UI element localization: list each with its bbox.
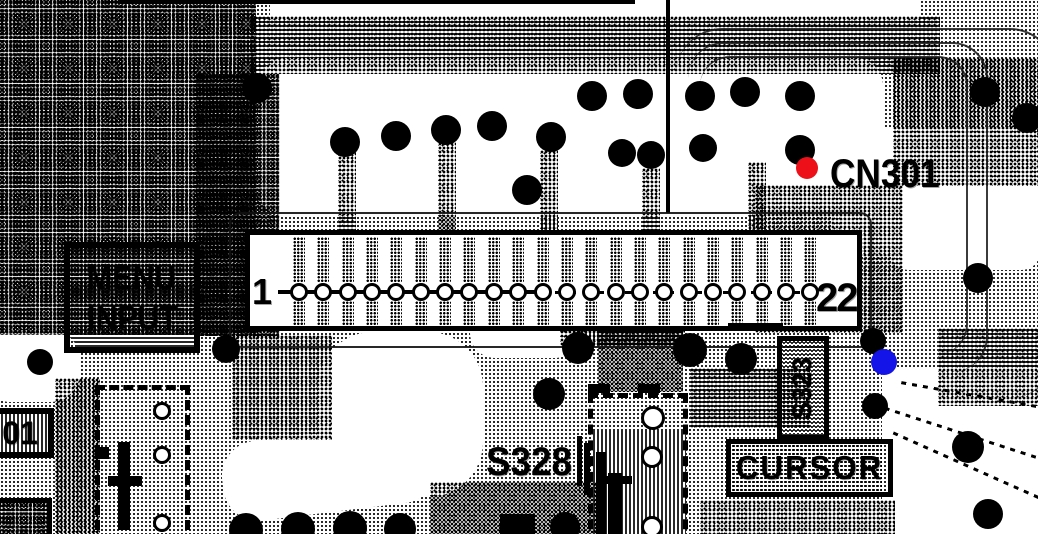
s323-label-box: S323	[777, 336, 829, 440]
input-label: INPUT	[86, 298, 177, 338]
trace-segment	[108, 476, 142, 486]
partial-bottom-left-box	[0, 498, 52, 534]
s323-label: S323	[788, 356, 819, 419]
trace-segment	[638, 384, 660, 393]
component-outline-left	[95, 385, 190, 534]
connector-name-label: CN301	[830, 152, 940, 197]
trace-segment	[588, 384, 610, 393]
trace-segment	[500, 514, 535, 534]
menu-label: MENU	[87, 258, 176, 298]
trace-segment	[728, 323, 783, 330]
partial-left-label-box: 01	[0, 408, 54, 458]
red-marker	[796, 157, 818, 179]
trace-segment	[606, 476, 632, 484]
menu-input-label-box: MENU INPUT	[64, 242, 200, 353]
s328-leader-tick	[577, 436, 582, 486]
trace-segment	[95, 447, 109, 459]
trace-segment	[118, 442, 130, 530]
blue-marker	[871, 349, 897, 375]
cursor-label: CURSOR	[736, 449, 883, 487]
pcb-diagram: 1 22 CN301 MENU INPUT S323 CURSOR S328 0…	[0, 0, 1038, 534]
partial-left-label: 01	[2, 415, 38, 452]
cursor-label-box: CURSOR	[726, 439, 893, 497]
trace-segment	[584, 443, 590, 495]
trace-segment	[615, 326, 672, 333]
trace-segment	[596, 452, 606, 534]
s328-label: S328	[486, 440, 572, 485]
